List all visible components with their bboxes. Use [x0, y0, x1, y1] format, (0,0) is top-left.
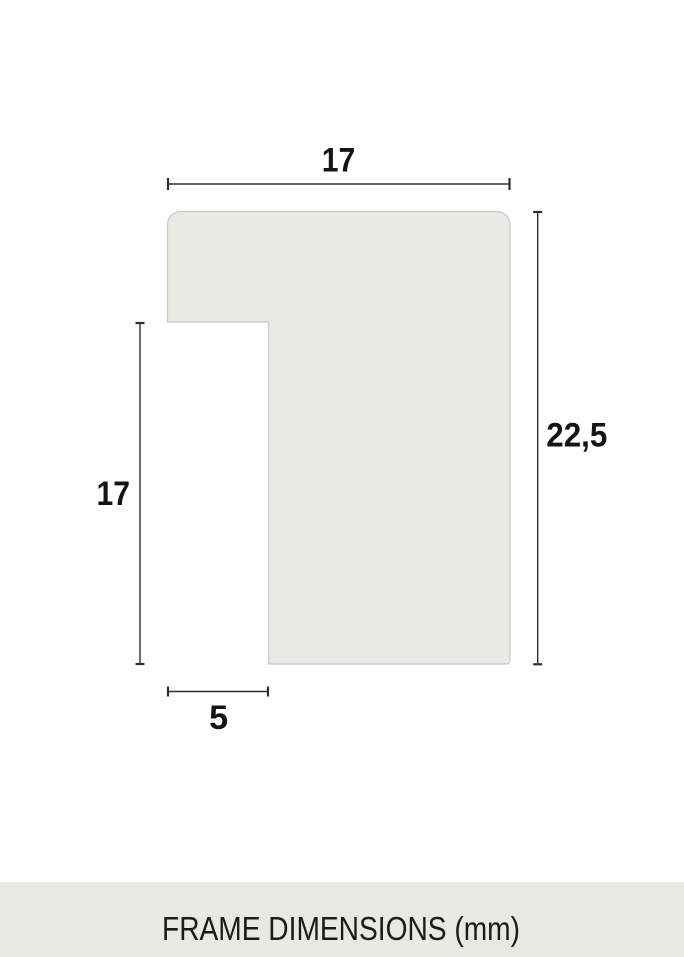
svg-text:17: 17 — [322, 142, 356, 180]
svg-text:17: 17 — [97, 475, 131, 513]
svg-text:5: 5 — [209, 699, 228, 737]
svg-text:22,5: 22,5 — [546, 416, 607, 454]
svg-text:FRAME DIMENSIONS (mm): FRAME DIMENSIONS (mm) — [162, 911, 520, 948]
